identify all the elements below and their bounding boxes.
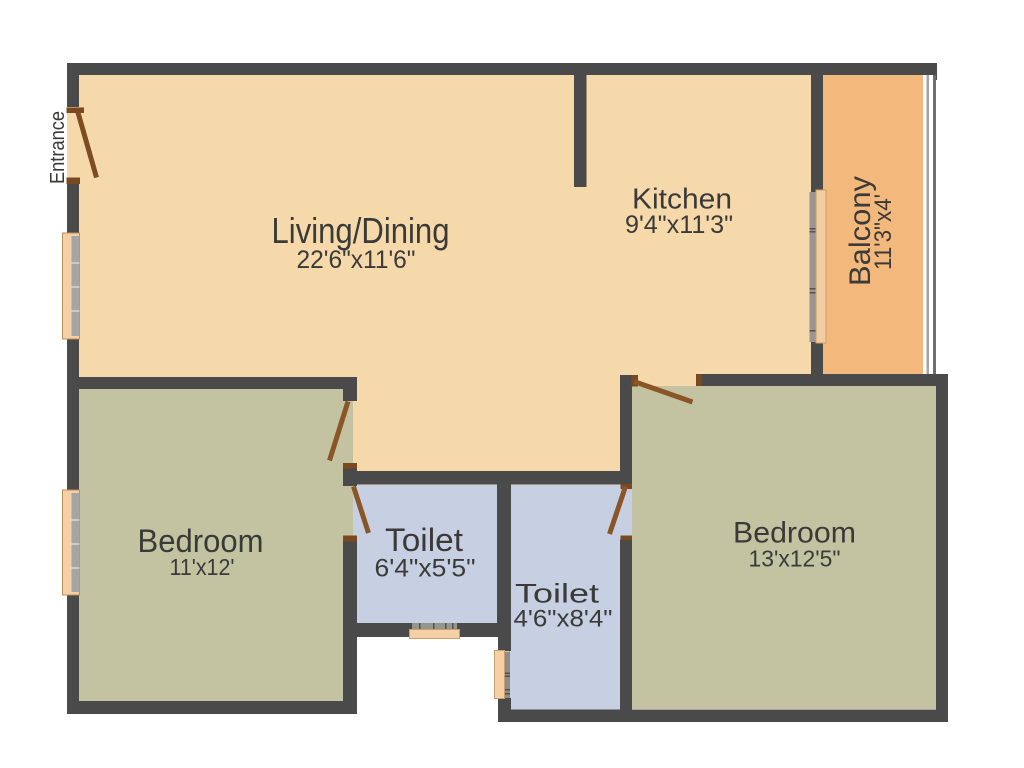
svg-text:Entrance: Entrance (47, 111, 69, 184)
svg-text:11'3"x4': 11'3"x4' (870, 194, 897, 270)
svg-text:22'6"x11'6": 22'6"x11'6" (297, 246, 416, 274)
svg-text:9'4"x11'3": 9'4"x11'3" (625, 211, 733, 239)
svg-text:Living/Dining: Living/Dining (272, 210, 450, 251)
svg-text:13'x12'5": 13'x12'5" (749, 546, 841, 572)
svg-text:11'x12': 11'x12' (170, 554, 235, 580)
svg-text:4'6"x8'4": 4'6"x8'4" (514, 606, 613, 633)
svg-text:6'4"x5'5": 6'4"x5'5" (375, 555, 476, 583)
svg-text:Toilet: Toilet (515, 579, 600, 609)
svg-text:Toilet: Toilet (385, 522, 463, 558)
